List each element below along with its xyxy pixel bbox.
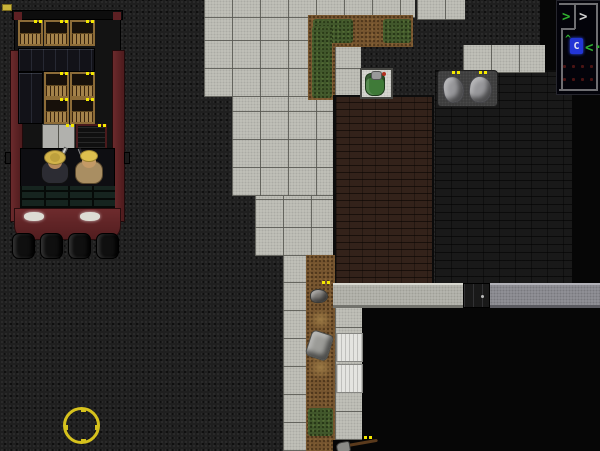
loot-marker-icon bbox=[86, 72, 89, 75]
survivor-caret-green: ^ bbox=[565, 35, 571, 45]
minimap-corpse-dot bbox=[572, 65, 575, 68]
loot-marker-layer bbox=[0, 0, 600, 451]
loot-marker-icon bbox=[66, 124, 69, 127]
survivor-arrow-green-1: > bbox=[562, 10, 570, 24]
loot-marker-icon bbox=[34, 20, 37, 23]
loot-marker-icon bbox=[98, 124, 101, 127]
loot-marker-icon bbox=[60, 72, 63, 75]
loot-marker-icon bbox=[86, 98, 89, 101]
minimap-corpse-dot bbox=[563, 78, 566, 81]
loot-marker-icon bbox=[364, 436, 367, 439]
loot-marker-icon bbox=[479, 71, 482, 74]
loot-marker-icon bbox=[86, 20, 89, 23]
loot-marker-icon bbox=[60, 98, 63, 101]
minimap-wall-line bbox=[561, 28, 575, 30]
loot-marker-icon bbox=[60, 20, 63, 23]
minimap-corpse-dot bbox=[563, 65, 566, 68]
minimap-corpse-dot bbox=[590, 65, 593, 68]
minimap-corpse-dot bbox=[590, 78, 593, 81]
minimap-wall-line bbox=[559, 3, 598, 5]
survivor-dot-green: . bbox=[594, 37, 600, 51]
minimap[interactable]: C >>^<. bbox=[556, 0, 600, 95]
minimap-corpse-dot bbox=[581, 78, 584, 81]
loot-marker-icon bbox=[322, 281, 325, 284]
minimap-corpse-dot bbox=[572, 78, 575, 81]
minimap-corpse-dot bbox=[581, 65, 584, 68]
loot-marker-icon bbox=[452, 71, 455, 74]
survivor-arrow-green-2: < bbox=[585, 41, 593, 55]
game-viewport[interactable]: C >>^<. bbox=[0, 0, 600, 451]
minimap-wall-line bbox=[574, 5, 576, 29]
minimap-wall-line bbox=[559, 89, 598, 91]
survivor-arrow-white: > bbox=[579, 10, 587, 24]
minimap-player-chip: C bbox=[570, 38, 583, 54]
